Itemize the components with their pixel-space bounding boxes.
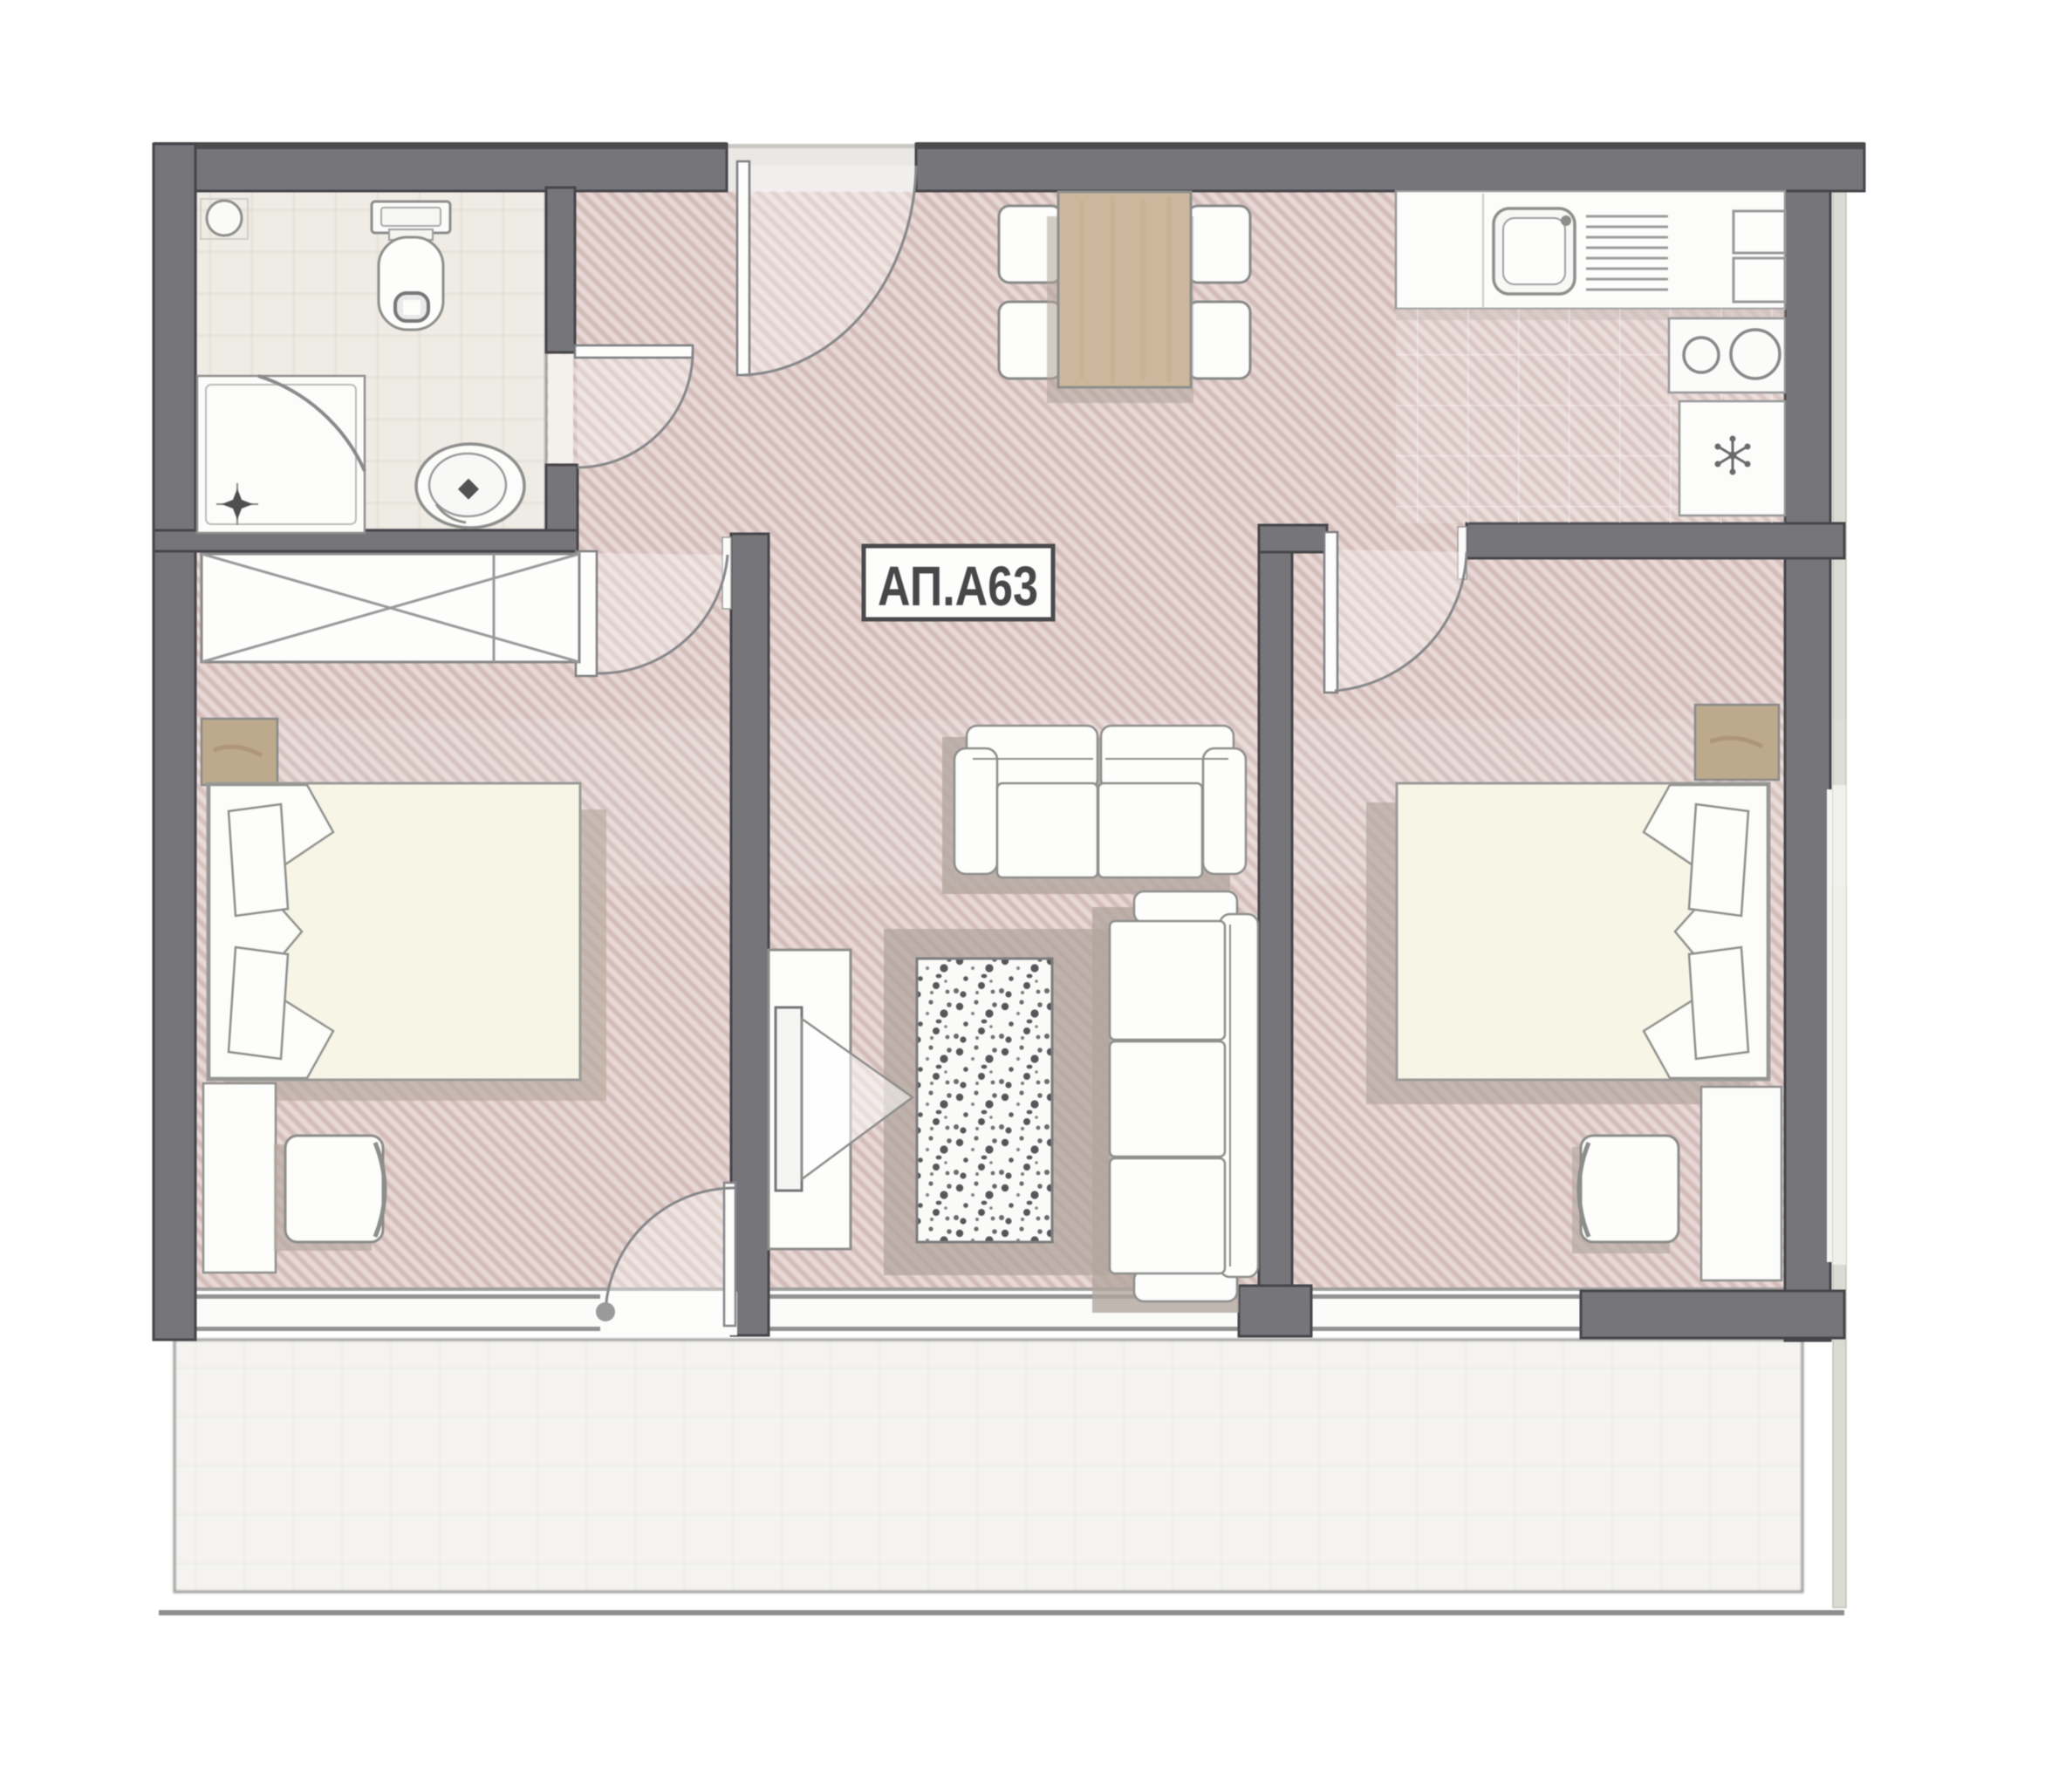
svg-text:АП.А63: АП.А63 [878,555,1038,618]
